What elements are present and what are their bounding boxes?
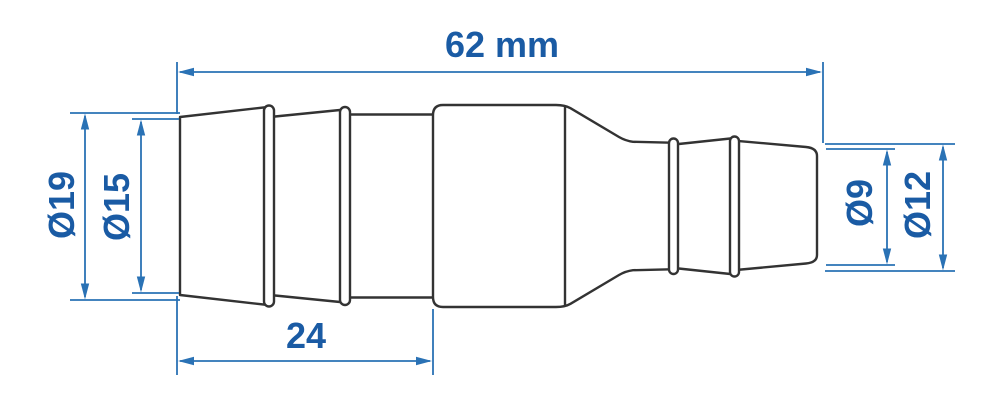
- right-barb-ridge-1: [669, 139, 678, 275]
- arrowhead-down: [81, 284, 89, 300]
- connector-part: [180, 105, 817, 307]
- arrowhead-up: [137, 120, 145, 136]
- left-barb-segment-1: [180, 107, 268, 305]
- dimension-label-barb-length: 24: [286, 318, 326, 354]
- left-barb-ridge-1: [264, 106, 274, 307]
- dimension-label-diameter-9: Ø9: [842, 179, 878, 227]
- right-barb-segment: [674, 138, 735, 275]
- arrowhead-up: [883, 150, 891, 166]
- dimension-label-overall-length: 62 mm: [445, 27, 559, 63]
- arrowhead-down: [883, 249, 891, 265]
- arrowhead-down: [939, 255, 947, 271]
- arrowhead-left: [178, 357, 194, 365]
- left-barb-ridge-2: [340, 107, 350, 305]
- drawing-canvas: 62 mm 24 Ø19 Ø15 Ø9 Ø12: [0, 0, 1000, 405]
- left-barb-segment-2: [270, 110, 345, 303]
- arrowhead-up: [939, 145, 947, 161]
- right-barb-ridge-2: [730, 137, 739, 277]
- left-barb-segment-3: [345, 115, 440, 298]
- arrowhead-right: [416, 357, 432, 365]
- arrowhead-down: [137, 277, 145, 293]
- right-barb-tip: [736, 141, 817, 270]
- arrowhead-up: [81, 114, 89, 130]
- dim-diameter-15: [132, 119, 179, 293]
- dimension-label-diameter-12: Ø12: [900, 171, 936, 239]
- arrowhead-left: [178, 68, 194, 76]
- dimension-label-diameter-19: Ø19: [44, 171, 80, 239]
- connector-body-and-cone: [433, 105, 676, 307]
- arrowhead-right: [806, 68, 822, 76]
- dimension-label-diameter-15: Ø15: [99, 173, 135, 241]
